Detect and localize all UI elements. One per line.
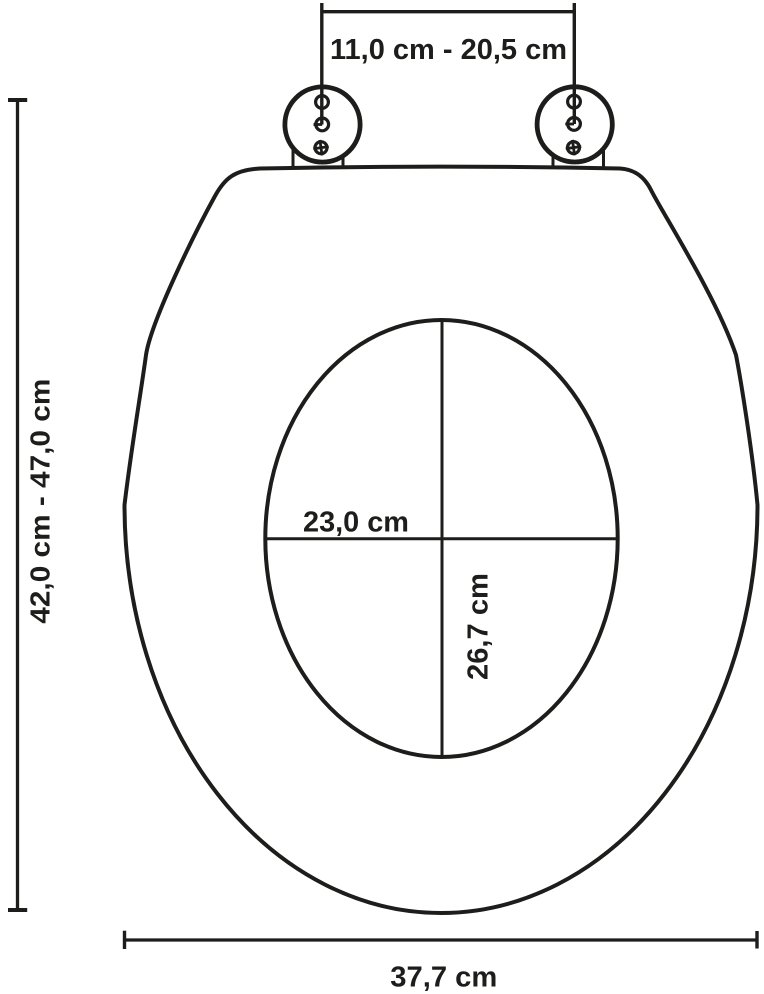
svg-text:23,0 cm: 23,0 cm	[303, 507, 409, 539]
svg-text:37,7 cm: 37,7 cm	[390, 962, 497, 994]
svg-text:42,0 cm - 47,0 cm: 42,0 cm - 47,0 cm	[25, 379, 56, 624]
svg-text:11,0 cm - 20,5 cm: 11,0 cm - 20,5 cm	[330, 34, 567, 66]
svg-text:26,7 cm: 26,7 cm	[463, 573, 495, 680]
